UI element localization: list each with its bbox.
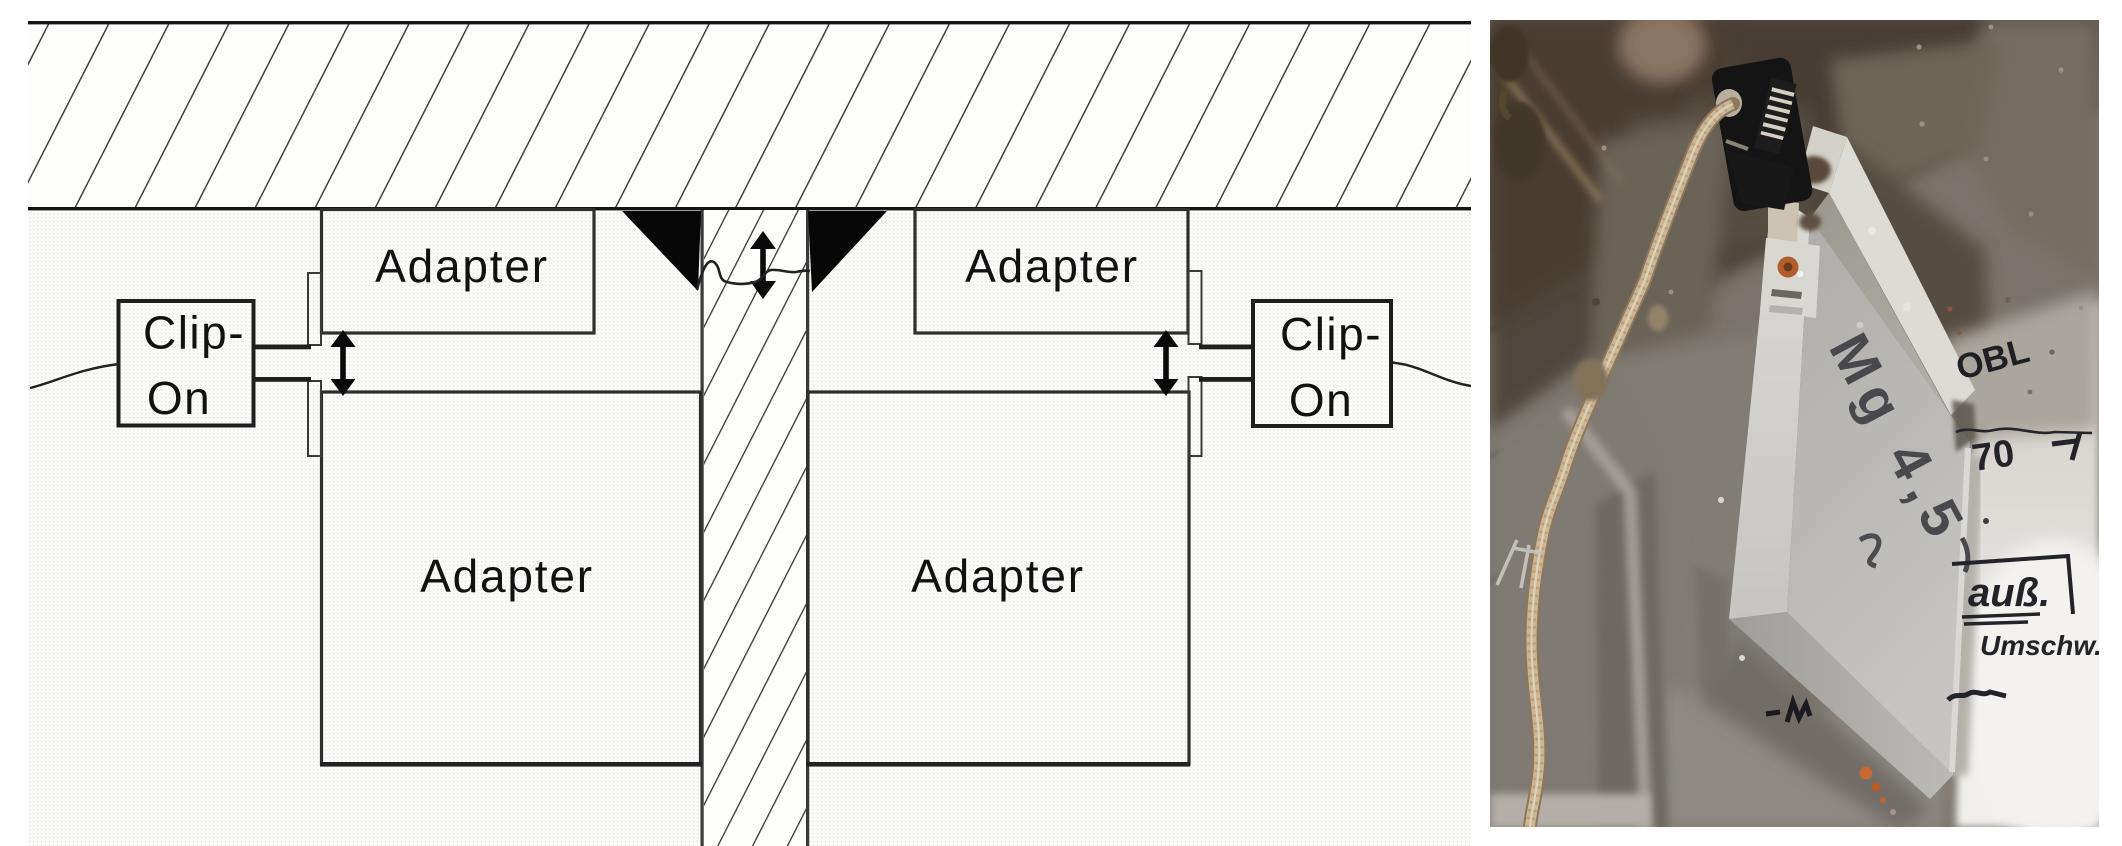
svg-text:Adapter: Adapter bbox=[965, 240, 1139, 292]
svg-text:auß.: auß. bbox=[1968, 571, 2050, 615]
svg-text:Umschw.: Umschw. bbox=[1980, 630, 2102, 661]
svg-text:Clip-: Clip- bbox=[1280, 308, 1382, 360]
svg-text:Adapter: Adapter bbox=[375, 240, 549, 292]
svg-text:Adapter: Adapter bbox=[911, 550, 1085, 602]
svg-text:On: On bbox=[1289, 374, 1353, 426]
svg-text:Adapter: Adapter bbox=[420, 550, 594, 602]
svg-text:Clip-: Clip- bbox=[143, 307, 245, 359]
svg-text:On: On bbox=[147, 372, 211, 424]
svg-text:70: 70 bbox=[1969, 432, 2017, 479]
